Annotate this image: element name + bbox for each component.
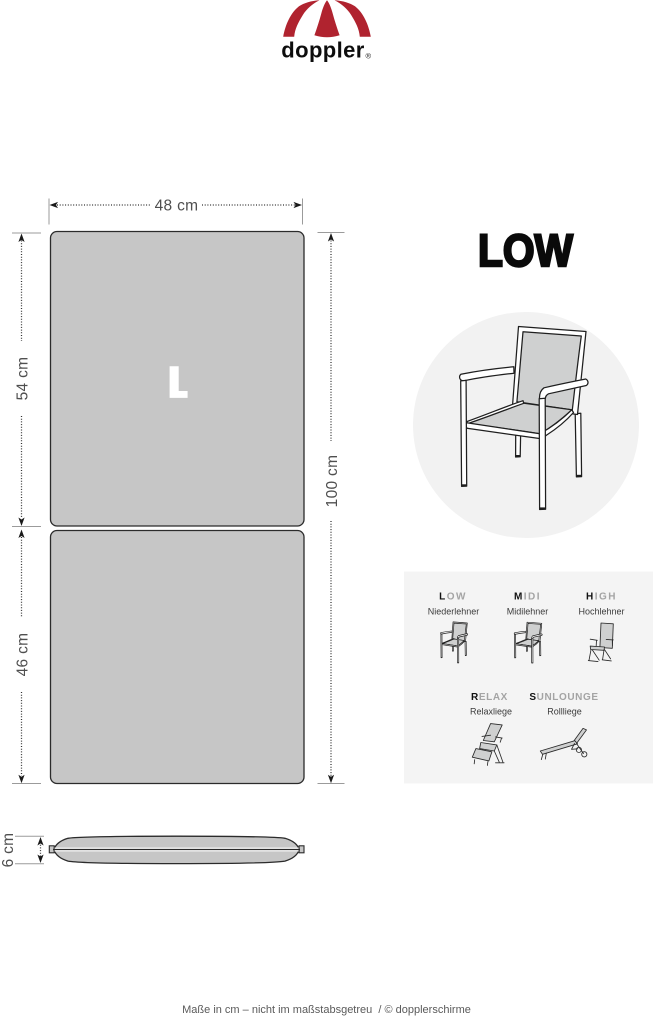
svg-text:54 cm: 54 cm bbox=[15, 357, 32, 401]
svg-text:46 cm: 46 cm bbox=[15, 633, 32, 677]
svg-text:Niederlehner: Niederlehner bbox=[428, 607, 480, 617]
svg-text:LOW: LOW bbox=[439, 592, 467, 603]
svg-text:RELAX: RELAX bbox=[471, 692, 508, 703]
svg-text:Rollliege: Rollliege bbox=[547, 706, 582, 716]
svg-text:MIDI: MIDI bbox=[514, 592, 541, 603]
svg-text:doppler: doppler bbox=[281, 38, 365, 63]
svg-text:®: ® bbox=[366, 52, 372, 61]
svg-text:6 cm: 6 cm bbox=[0, 833, 17, 868]
svg-text:Hochlehner: Hochlehner bbox=[578, 607, 624, 617]
svg-text:Relaxliege: Relaxliege bbox=[470, 706, 512, 716]
svg-text:Midilehner: Midilehner bbox=[507, 607, 549, 617]
svg-text:Maße in cm – nicht im maßstabs: Maße in cm – nicht im maßstabsgetreu / ©… bbox=[182, 1004, 471, 1016]
svg-text:100 cm: 100 cm bbox=[324, 455, 341, 508]
svg-text:48 cm: 48 cm bbox=[155, 198, 199, 215]
svg-text:LOW: LOW bbox=[478, 225, 573, 276]
svg-text:HIGH: HIGH bbox=[586, 592, 617, 603]
svg-text:SUNLOUNGE: SUNLOUNGE bbox=[529, 692, 598, 703]
